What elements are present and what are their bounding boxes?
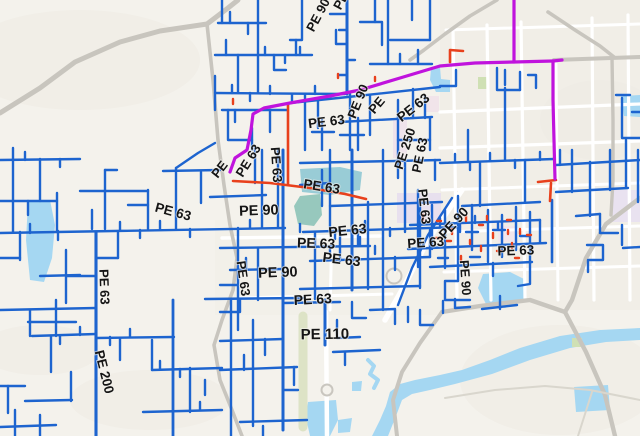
map-viewport: PE 90PE 90PE 63PE 90PEPE 63PE 250PE 63PE…	[0, 0, 640, 436]
pipe-segment[interactable]	[623, 247, 640, 248]
pipe-label: PE 90	[258, 264, 298, 281]
pipe-label: PE 90	[457, 259, 474, 295]
pipe-label: PE 63	[268, 146, 285, 182]
pipe-label: PE 110	[301, 326, 350, 344]
pipe-label: PE 63	[407, 234, 445, 252]
water-body	[352, 381, 362, 391]
pipe-label: PE 63	[497, 242, 535, 258]
street	[556, 64, 558, 300]
steel-pipe-segment[interactable]	[550, 183, 551, 201]
pipe-segment[interactable]	[215, 93, 345, 94]
pipe-segment[interactable]	[25, 400, 72, 401]
terrain-blob	[70, 370, 230, 430]
roundabout	[322, 385, 333, 396]
map-canvas[interactable]: PE 90PE 90PE 63PE 90PEPE 63PE 250PE 63PE…	[0, 0, 640, 436]
pipe-segment[interactable]	[96, 337, 174, 338]
water-body	[338, 418, 352, 433]
pipe-label: PE 63	[293, 290, 332, 308]
roundabout	[387, 269, 402, 284]
pipe-label: PE 63	[96, 269, 112, 305]
pipe-segment[interactable]	[205, 298, 303, 299]
pipe-label: PE 90	[239, 202, 279, 219]
